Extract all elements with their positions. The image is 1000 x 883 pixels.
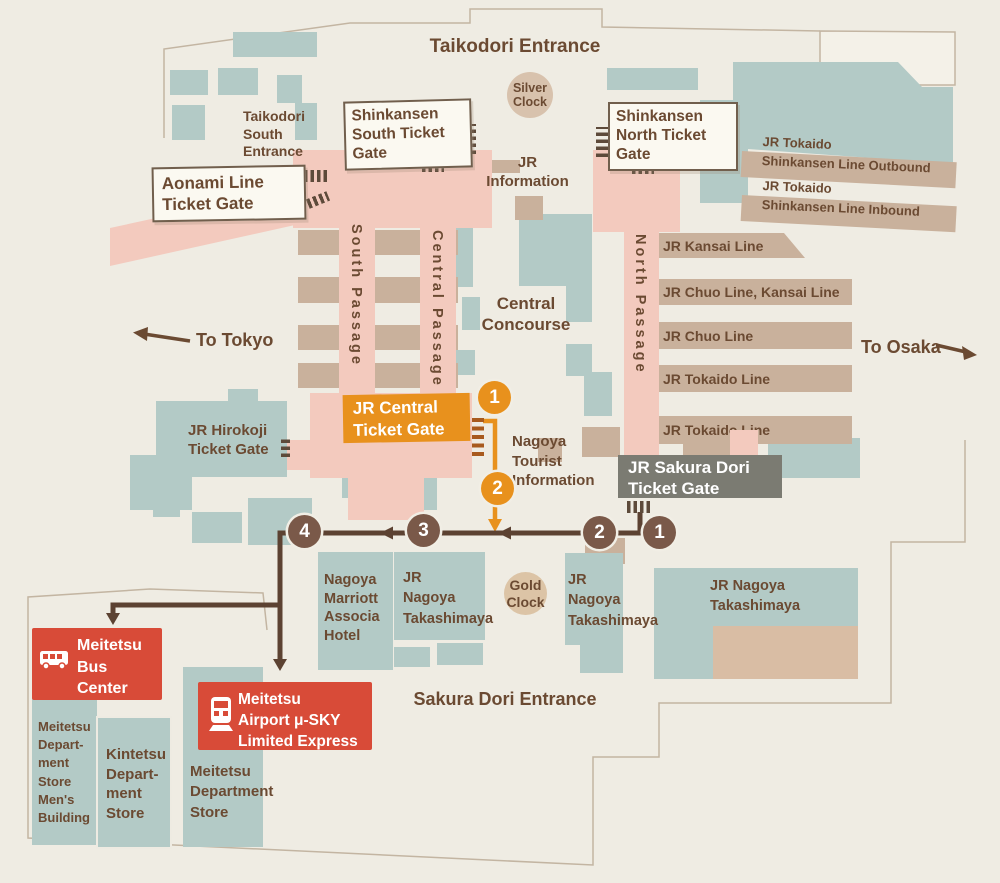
route-step-badge-orange-2: 2: [481, 472, 514, 505]
ticket-gate-icon: [596, 127, 608, 157]
label-marriott-hotel: Nagoya Marriott Associa Hotel: [324, 571, 380, 645]
label-kintetsu: Kintetsu Depart- ment Store: [106, 745, 166, 823]
meitetsu-bus-center-box: Meitetsu Bus Center: [32, 628, 162, 700]
gold-clock-label: Gold Clock: [506, 577, 544, 609]
to-tokyo-arrow: [144, 334, 190, 341]
jr-central-gate-box: JR Central Ticket Gate: [343, 393, 471, 443]
label-jr-hirokoji-gate: JR Hirokoji Ticket Gate: [188, 422, 269, 460]
label-sakura-dori-entrance: Sakura Dori Entrance: [400, 688, 610, 711]
label-to-tokyo: To Tokyo: [196, 329, 273, 352]
train-icon: [208, 696, 234, 732]
label-to-osaka: To Osaka: [861, 336, 941, 359]
label-north-passage: North Passage: [632, 234, 648, 375]
route-step-badge-brown-3: 3: [407, 514, 440, 547]
label-takashimaya-2: JR Nagoya Takashimaya: [568, 570, 658, 631]
label-meitetsu-mens: Meitetsu Depart- ment Store Men's Buildi…: [38, 718, 91, 827]
shinkansen-north-gate-box: Shinkansen North Ticket Gate: [608, 102, 738, 171]
route-step-badge-orange-1: 1: [478, 381, 511, 414]
label-central-concourse: Central Concourse: [460, 293, 592, 336]
station-map: JR Kansai Line JR Chuo Line, Kansai Line…: [0, 0, 1000, 883]
label-central-passage: Central Passage: [429, 230, 445, 388]
label-takashimaya-1: JR Nagoya Takashimaya: [403, 568, 493, 629]
jr-sakura-dori-gate-box: JR Sakura Dori Ticket Gate: [618, 455, 782, 498]
gold-clock: Gold Clock: [504, 572, 547, 615]
label-south-passage: South Passage: [348, 224, 364, 367]
route-step-badge-brown-4: 4: [288, 515, 321, 548]
shinkansen-south-gate-box: Shinkansen South Ticket Gate: [343, 98, 473, 170]
bus-center-label: Meitetsu Bus Center: [77, 635, 142, 700]
label-tourist-information: Nagoya Tourist Information: [512, 432, 595, 491]
label-taikodori-south-entrance: Taikodori South Entrance: [243, 108, 305, 161]
label-jr-information: JR Information: [460, 154, 595, 192]
ticket-gate-icon: [472, 414, 484, 456]
meitetsu-mu-sky-box: Meitetsu Airport μ-SKY Limited Express: [198, 682, 372, 750]
ticket-gate-icon: [281, 437, 290, 457]
silver-clock: Silver Clock: [507, 72, 553, 118]
aonami-gate-box: Aonami Line Ticket Gate: [152, 165, 307, 223]
ticket-gate-icon: [304, 170, 330, 182]
route-step-badge-brown-1: 1: [643, 516, 676, 549]
label-takashimaya-3: JR Nagoya Takashimaya: [710, 576, 800, 617]
label-taikodori-entrance: Taikodori Entrance: [400, 35, 630, 59]
route-step-badge-brown-2: 2: [583, 516, 616, 549]
ticket-gate-icon: [627, 501, 653, 513]
silver-clock-label: Silver Clock: [513, 81, 547, 110]
bus-icon: [39, 650, 69, 670]
label-meitetsu-dept: Meitetsu Department Store: [190, 762, 273, 823]
mu-sky-label: Meitetsu Airport μ-SKY Limited Express: [238, 690, 358, 753]
